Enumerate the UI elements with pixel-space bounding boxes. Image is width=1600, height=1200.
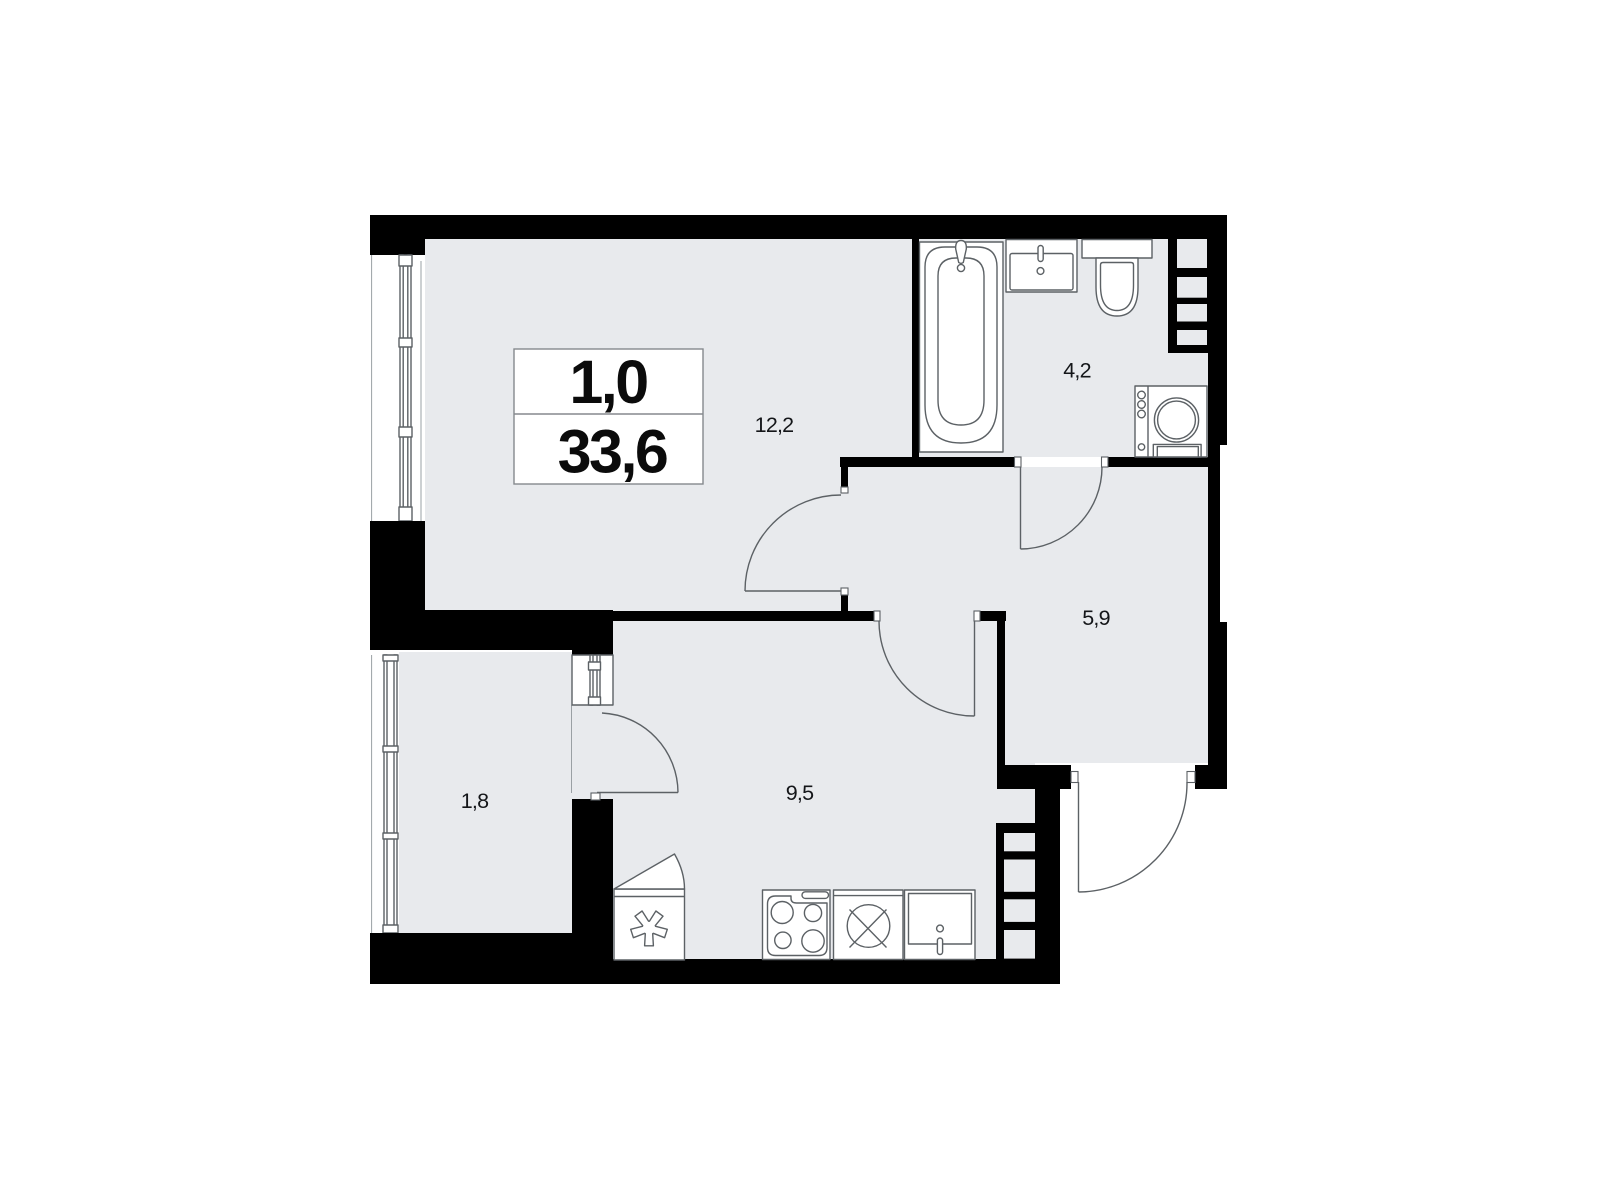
svg-text:33,6: 33,6: [558, 418, 667, 486]
svg-text:1,8: 1,8: [461, 789, 489, 813]
svg-text:5,9: 5,9: [1082, 606, 1110, 630]
svg-text:4,2: 4,2: [1063, 359, 1091, 383]
svg-text:12,2: 12,2: [755, 413, 794, 437]
svg-text:9,5: 9,5: [786, 781, 814, 805]
svg-text:1,0: 1,0: [569, 348, 647, 416]
